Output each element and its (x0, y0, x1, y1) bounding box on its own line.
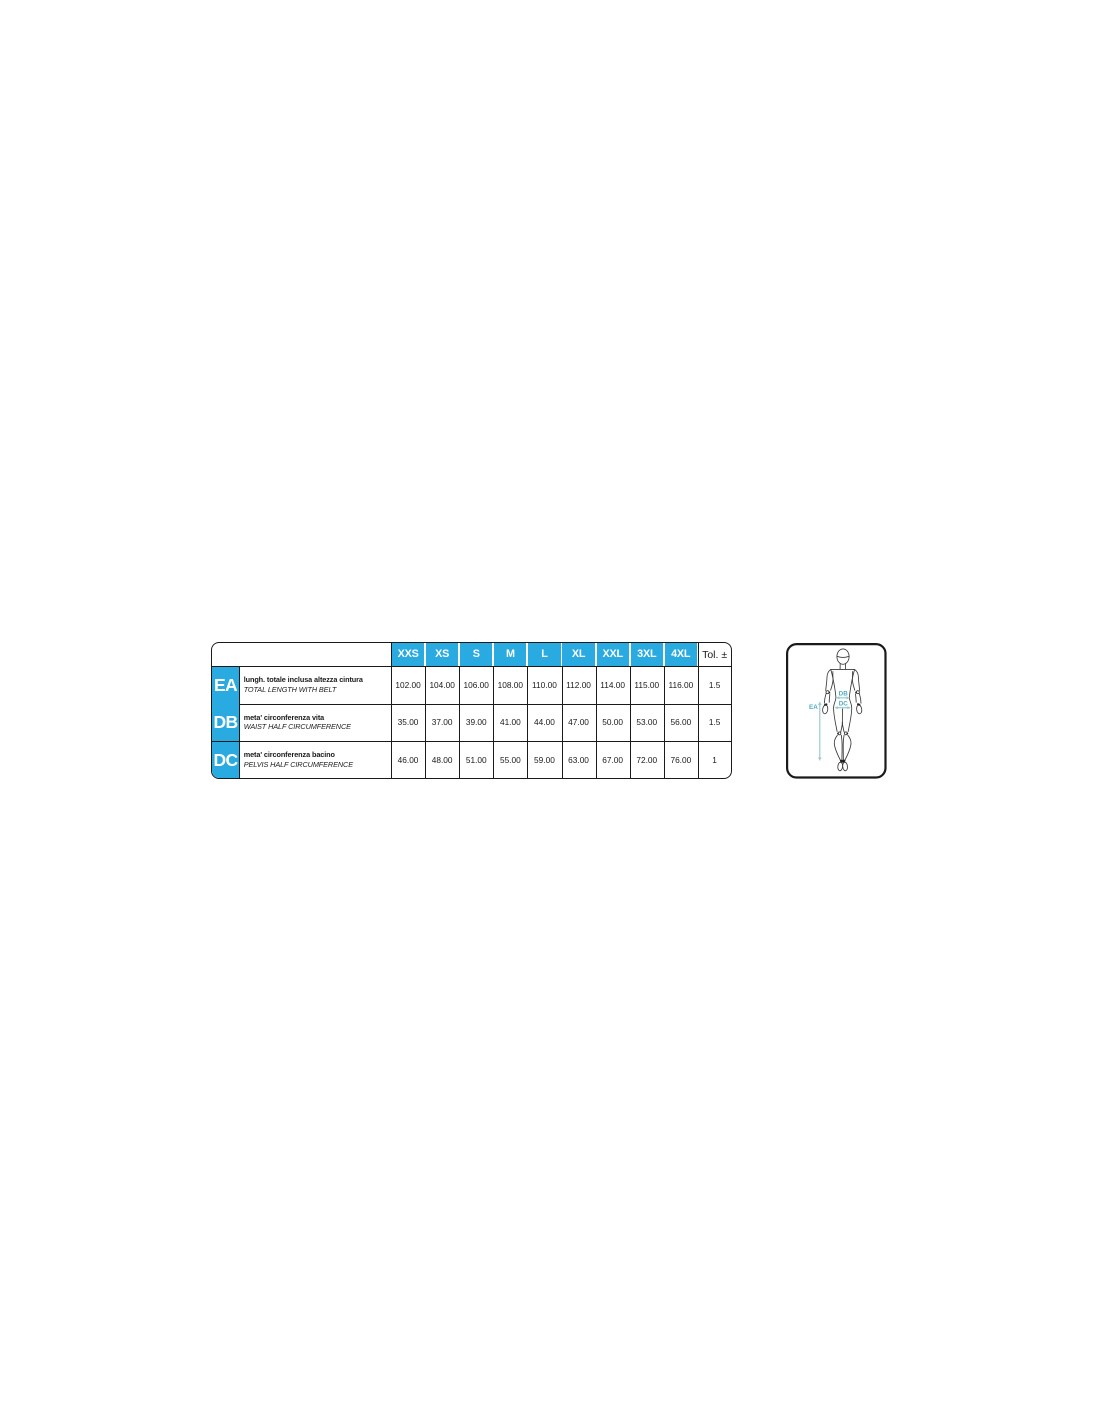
svg-text:DB: DB (839, 691, 849, 698)
svg-text:DC: DC (839, 701, 849, 708)
svg-text:EA: EA (809, 704, 818, 711)
